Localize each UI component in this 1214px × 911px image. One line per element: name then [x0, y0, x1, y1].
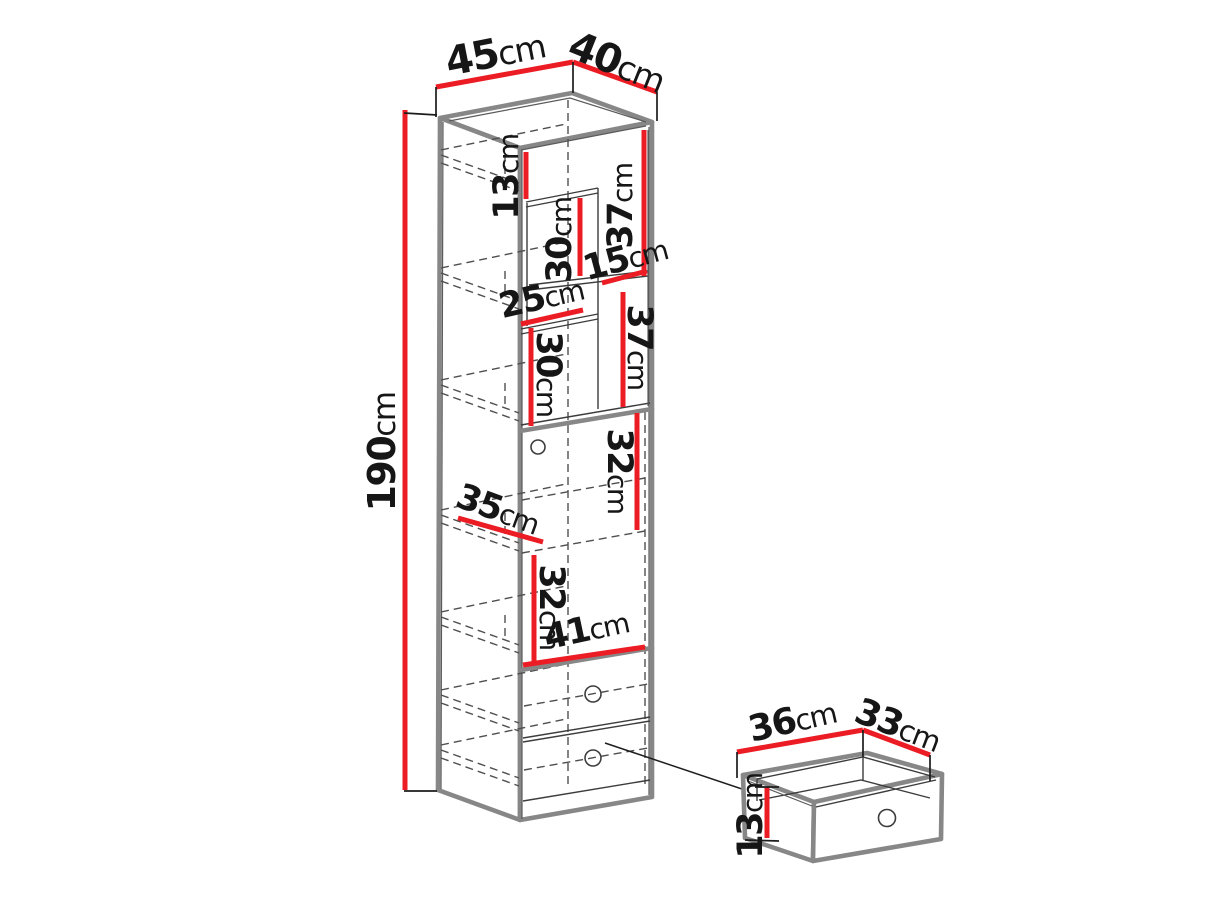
drawer-top-rim	[743, 753, 942, 775]
diagram-canvas: 45cm 40cm 190cm 13cm 30cm 37cm 15cm 25cm…	[0, 0, 1214, 911]
drawer-unit-knob	[879, 810, 896, 827]
dim-label-36cm: 36cm	[745, 691, 840, 751]
dim-label-13cm-top: 13cm	[487, 134, 527, 219]
cabinet-side-face	[438, 118, 520, 820]
drawer-unit: 36cm 33cm 13cm	[731, 691, 946, 861]
dim-label-45cm: 45cm	[442, 21, 549, 85]
dim-label-37cm-lower: 37cm	[619, 304, 659, 389]
dim-label-13cm-drawer: 13cm	[731, 773, 771, 858]
drawer-front-panel	[813, 774, 942, 861]
furniture-diagram: 45cm 40cm 190cm 13cm 30cm 37cm 15cm 25cm…	[0, 0, 1214, 911]
dim-label-190cm: 190cm	[360, 392, 404, 511]
dim-label-40cm: 40cm	[562, 23, 672, 103]
dim-label-30cm-upper: 30cm	[540, 197, 580, 282]
dim-label-30cm-lower: 30cm	[528, 331, 568, 416]
dim-label-32cm-upper: 32cm	[599, 428, 639, 513]
door-knob	[531, 440, 545, 454]
dim-label-37cm-upper: 37cm	[601, 163, 641, 248]
